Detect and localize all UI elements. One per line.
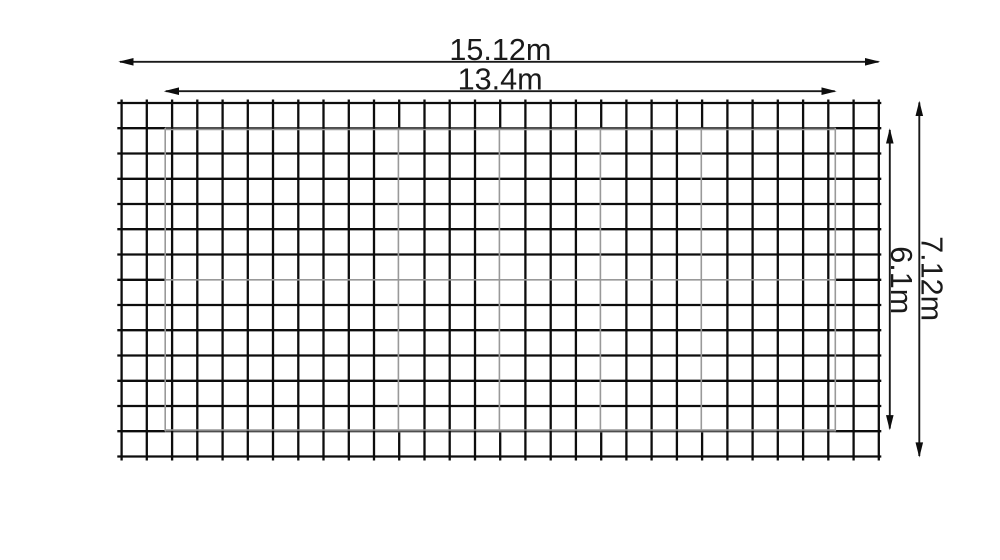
svg-text:7.12m: 7.12m	[914, 236, 948, 321]
svg-text:6.1m: 6.1m	[884, 246, 918, 314]
svg-text:13.4m: 13.4m	[458, 62, 543, 96]
